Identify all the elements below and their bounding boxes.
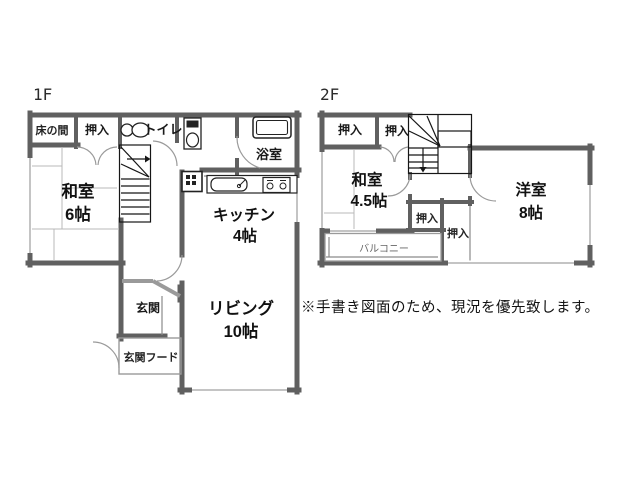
floorplan-svg: 1F bbox=[0, 0, 640, 480]
room-label-washitsu-1f: 和室 bbox=[62, 181, 95, 201]
room-size-living: 10帖 bbox=[224, 321, 259, 341]
washbasin-icon bbox=[184, 118, 201, 149]
room-label-kitchen: キッチン bbox=[213, 207, 275, 224]
room-size-youshitsu: 8帖 bbox=[519, 203, 544, 222]
tatami-1f bbox=[32, 147, 119, 261]
room-label-tokonoma: 床の間 bbox=[36, 123, 69, 137]
stairs-down-arrow-icon bbox=[420, 148, 427, 173]
room-label-oshiire-1f: 押入 bbox=[85, 122, 109, 137]
staircase-2f bbox=[409, 115, 472, 174]
tatami-2f bbox=[324, 150, 354, 229]
room-size-kitchen: 4帖 bbox=[233, 226, 258, 245]
bathtub-icon bbox=[253, 117, 291, 138]
room-label-balcony: バルコニー bbox=[359, 243, 409, 255]
floorplan-image: 1F bbox=[0, 0, 640, 480]
room-label-oshiire-2f-a: 押入 bbox=[338, 122, 362, 137]
room-label-genkan-hood: 玄関フード bbox=[124, 350, 179, 364]
room-label-genkan: 玄関 bbox=[136, 300, 160, 315]
room-label-youshitsu: 洋室 bbox=[515, 180, 546, 199]
floor-1-label: 1F bbox=[33, 85, 52, 104]
room-size-washitsu-2f: 4.5帖 bbox=[350, 191, 388, 210]
room-label-living: リビング bbox=[208, 298, 275, 318]
room-size-washitsu-1f: 6帖 bbox=[65, 204, 91, 224]
utility-box-icon bbox=[182, 172, 207, 192]
room-label-oshiire-2f-c: 押入 bbox=[416, 211, 438, 225]
room-label-washitsu-2f: 和室 bbox=[351, 170, 382, 189]
room-label-toilet: トイレ bbox=[143, 122, 182, 137]
kitchen-counter bbox=[207, 176, 297, 194]
staircase-1f bbox=[120, 145, 151, 222]
floor-2-label: 2F bbox=[320, 85, 339, 104]
stove-icon bbox=[263, 178, 290, 193]
sink-icon bbox=[211, 178, 247, 191]
floor-1: 1F bbox=[28, 85, 300, 393]
room-label-oshiire-2f-b: 押入 bbox=[385, 123, 409, 138]
floor-2: 2F bbox=[320, 85, 593, 266]
handwritten-plan-note: ※手書き図面のため、現況を優先致します。 bbox=[301, 299, 600, 316]
room-label-oshiire-2f-d: 押入 bbox=[447, 226, 469, 240]
room-label-bath: 浴室 bbox=[256, 147, 282, 162]
